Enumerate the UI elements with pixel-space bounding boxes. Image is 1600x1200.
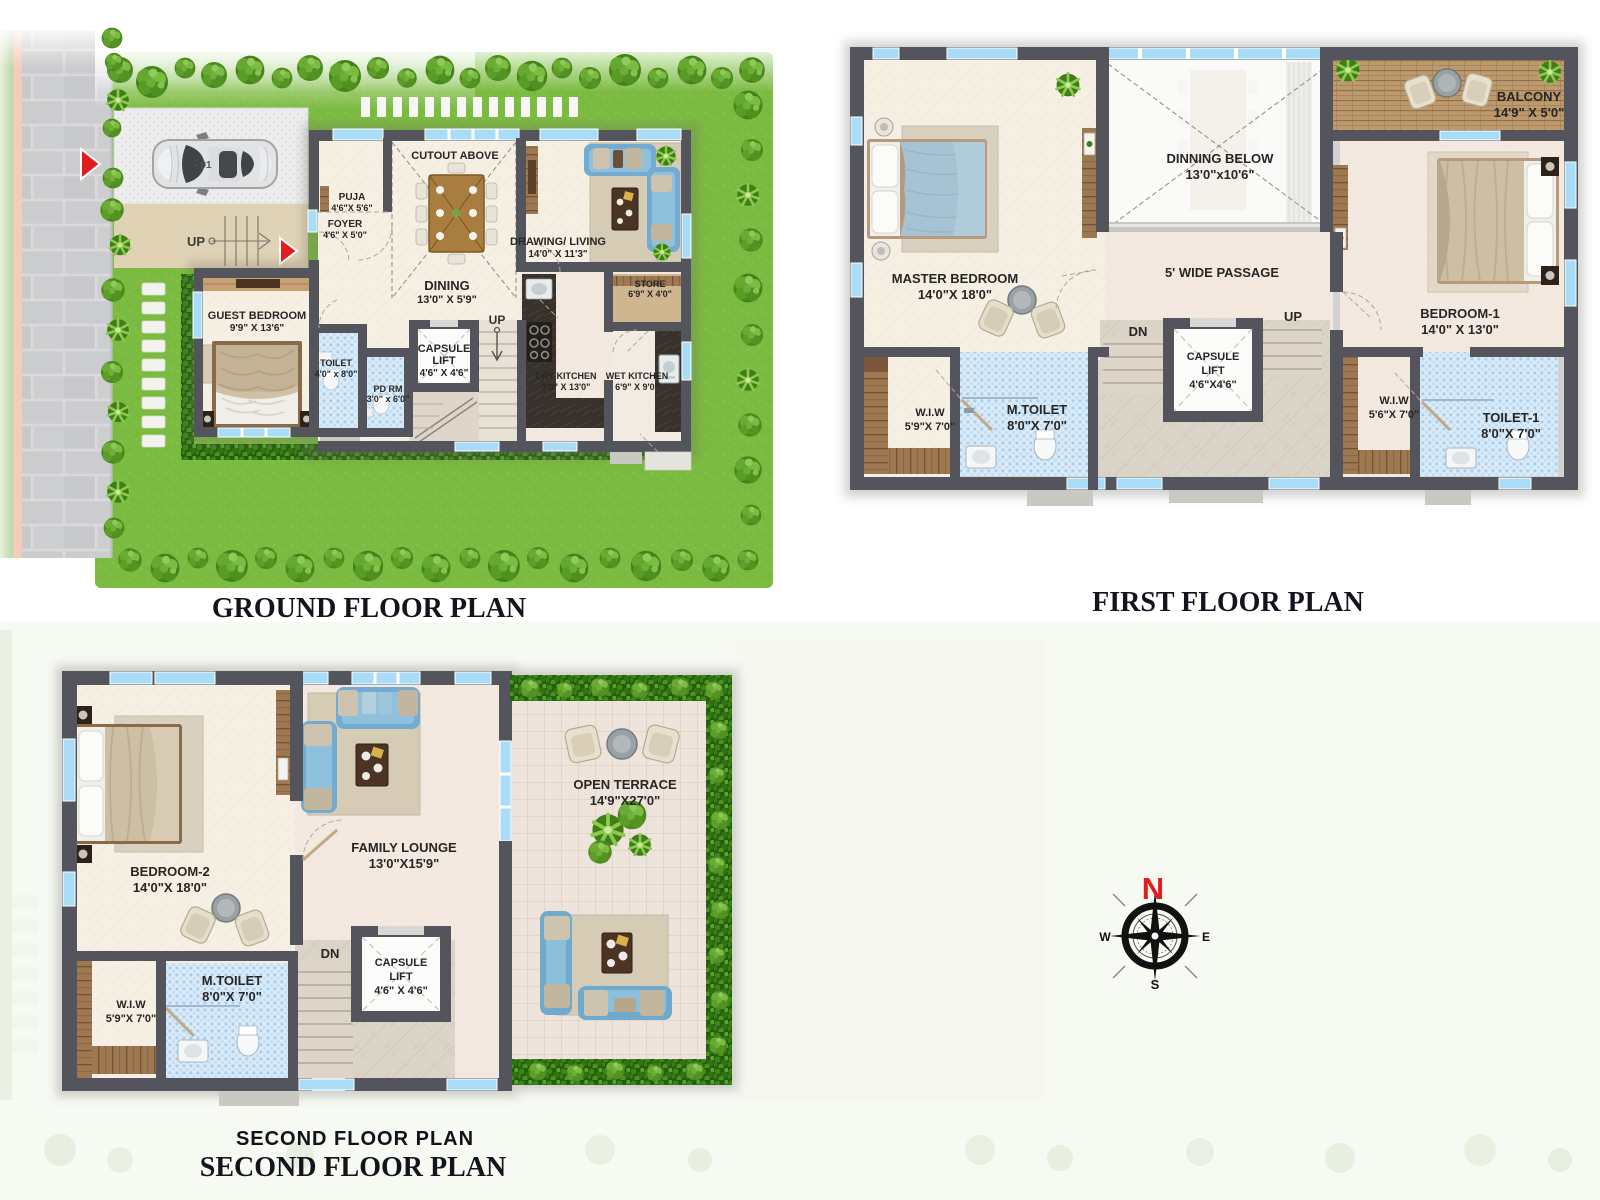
- svg-text:DINNING BELOW: DINNING BELOW: [1167, 151, 1275, 166]
- svg-text:GUEST BEDROOM: GUEST BEDROOM: [208, 310, 306, 322]
- svg-text:M.TOILET: M.TOILET: [1007, 402, 1067, 417]
- svg-text:8'0"X 7'0": 8'0"X 7'0": [1007, 418, 1067, 433]
- svg-text:13'0" X 5'9": 13'0" X 5'9": [417, 294, 477, 306]
- svg-text:14'0" X 13'0": 14'0" X 13'0": [1421, 322, 1499, 337]
- svg-text:4'6"X4'6": 4'6"X4'6": [1189, 379, 1236, 391]
- svg-text:4'6" X 4'6": 4'6" X 4'6": [420, 368, 469, 379]
- svg-text:SECOND FLOOR PLAN: SECOND FLOOR PLAN: [236, 1128, 474, 1150]
- svg-text:DN: DN: [1129, 324, 1148, 339]
- svg-text:LIFT: LIFT: [389, 971, 412, 983]
- svg-text:7'0" X 13'0": 7'0" X 13'0": [542, 382, 591, 392]
- svg-text:5'9"X 7'0": 5'9"X 7'0": [905, 421, 956, 433]
- svg-text:WET KITCHEN: WET KITCHEN: [606, 371, 669, 381]
- svg-text:14'0" X 11'3": 14'0" X 11'3": [528, 249, 588, 260]
- svg-text:14'9"X27'0": 14'9"X27'0": [590, 793, 661, 808]
- svg-text:CUTOUT ABOVE: CUTOUT ABOVE: [411, 150, 498, 162]
- svg-text:BEDROOM-1: BEDROOM-1: [1420, 306, 1499, 321]
- svg-text:M.TOILET: M.TOILET: [202, 973, 262, 988]
- svg-text:CAPSULE: CAPSULE: [418, 343, 471, 355]
- svg-text:FAMILY LOUNGE: FAMILY LOUNGE: [351, 840, 457, 855]
- svg-text:N: N: [1142, 871, 1164, 906]
- svg-text:3'0" x 6'0": 3'0" x 6'0": [367, 394, 410, 404]
- svg-text:14'0"X 18'0": 14'0"X 18'0": [133, 880, 207, 895]
- svg-text:FOYER: FOYER: [328, 219, 363, 230]
- svg-text:STORE: STORE: [635, 279, 666, 289]
- svg-text:E: E: [1202, 930, 1210, 944]
- svg-text:LIFT: LIFT: [432, 355, 455, 367]
- svg-text:13'0"x10'6": 13'0"x10'6": [1185, 167, 1254, 182]
- svg-text:BEDROOM-2: BEDROOM-2: [130, 864, 209, 879]
- svg-text:5' WIDE PASSAGE: 5' WIDE PASSAGE: [1165, 265, 1279, 280]
- svg-text:4'0" x 8'0": 4'0" x 8'0": [315, 369, 358, 379]
- svg-text:4'6"X 5'6": 4'6"X 5'6": [331, 203, 372, 213]
- svg-text:DINING: DINING: [424, 278, 470, 293]
- svg-text:CAPSULE: CAPSULE: [375, 957, 428, 969]
- svg-text:6'9" X 9'0": 6'9" X 9'0": [615, 382, 659, 392]
- svg-text:6'9" X 4'0": 6'9" X 4'0": [628, 289, 672, 299]
- svg-text:W.I.W: W.I.W: [116, 999, 146, 1011]
- svg-text:UP: UP: [187, 234, 205, 249]
- svg-text:4'6" X 4'6": 4'6" X 4'6": [374, 985, 428, 997]
- svg-text:TOILET-1: TOILET-1: [1483, 410, 1540, 425]
- svg-text:DRY KITCHEN: DRY KITCHEN: [535, 371, 596, 381]
- svg-text:13'0"X15'9": 13'0"X15'9": [369, 856, 440, 871]
- svg-text:W.I.W: W.I.W: [1379, 395, 1409, 407]
- svg-text:LIFT: LIFT: [1201, 365, 1224, 377]
- svg-text:PUJA: PUJA: [339, 192, 366, 203]
- svg-text:GROUND FLOOR PLAN: GROUND FLOOR PLAN: [212, 593, 526, 624]
- svg-text:PD RM: PD RM: [374, 384, 403, 394]
- svg-text:14'9" X 5'0": 14'9" X 5'0": [1494, 105, 1565, 120]
- svg-text:14'0"X 18'0": 14'0"X 18'0": [918, 287, 992, 302]
- svg-text:5'6"X 7'0": 5'6"X 7'0": [1369, 409, 1420, 421]
- svg-text:UP: UP: [489, 313, 506, 327]
- svg-text:W: W: [1099, 930, 1111, 944]
- svg-text:5'9"X 7'0": 5'9"X 7'0": [106, 1013, 157, 1025]
- svg-text:DN: DN: [321, 946, 340, 961]
- svg-text:UP: UP: [1284, 309, 1302, 324]
- svg-text:- 01: - 01: [194, 160, 212, 171]
- svg-text:9'9" X 13'6": 9'9" X 13'6": [230, 323, 285, 334]
- svg-text:CAPSULE: CAPSULE: [1187, 351, 1240, 363]
- svg-text:DRAWING/ LIVING: DRAWING/ LIVING: [510, 236, 606, 248]
- svg-text:S: S: [1151, 977, 1160, 992]
- svg-text:TOILET: TOILET: [320, 358, 352, 368]
- svg-text:W.I.W: W.I.W: [915, 407, 945, 419]
- svg-text:SECOND FLOOR PLAN: SECOND FLOOR PLAN: [200, 1152, 506, 1183]
- svg-text:4'6" X 5'0": 4'6" X 5'0": [323, 230, 367, 240]
- svg-text:8'0"X 7'0": 8'0"X 7'0": [202, 989, 262, 1004]
- svg-text:OPEN TERRACE: OPEN TERRACE: [573, 777, 677, 792]
- svg-text:BALCONY: BALCONY: [1497, 89, 1562, 104]
- svg-text:MASTER BEDROOM: MASTER BEDROOM: [892, 271, 1018, 286]
- svg-text:8'0"X 7'0": 8'0"X 7'0": [1481, 426, 1541, 441]
- svg-text:FIRST FLOOR PLAN: FIRST FLOOR PLAN: [1092, 587, 1364, 618]
